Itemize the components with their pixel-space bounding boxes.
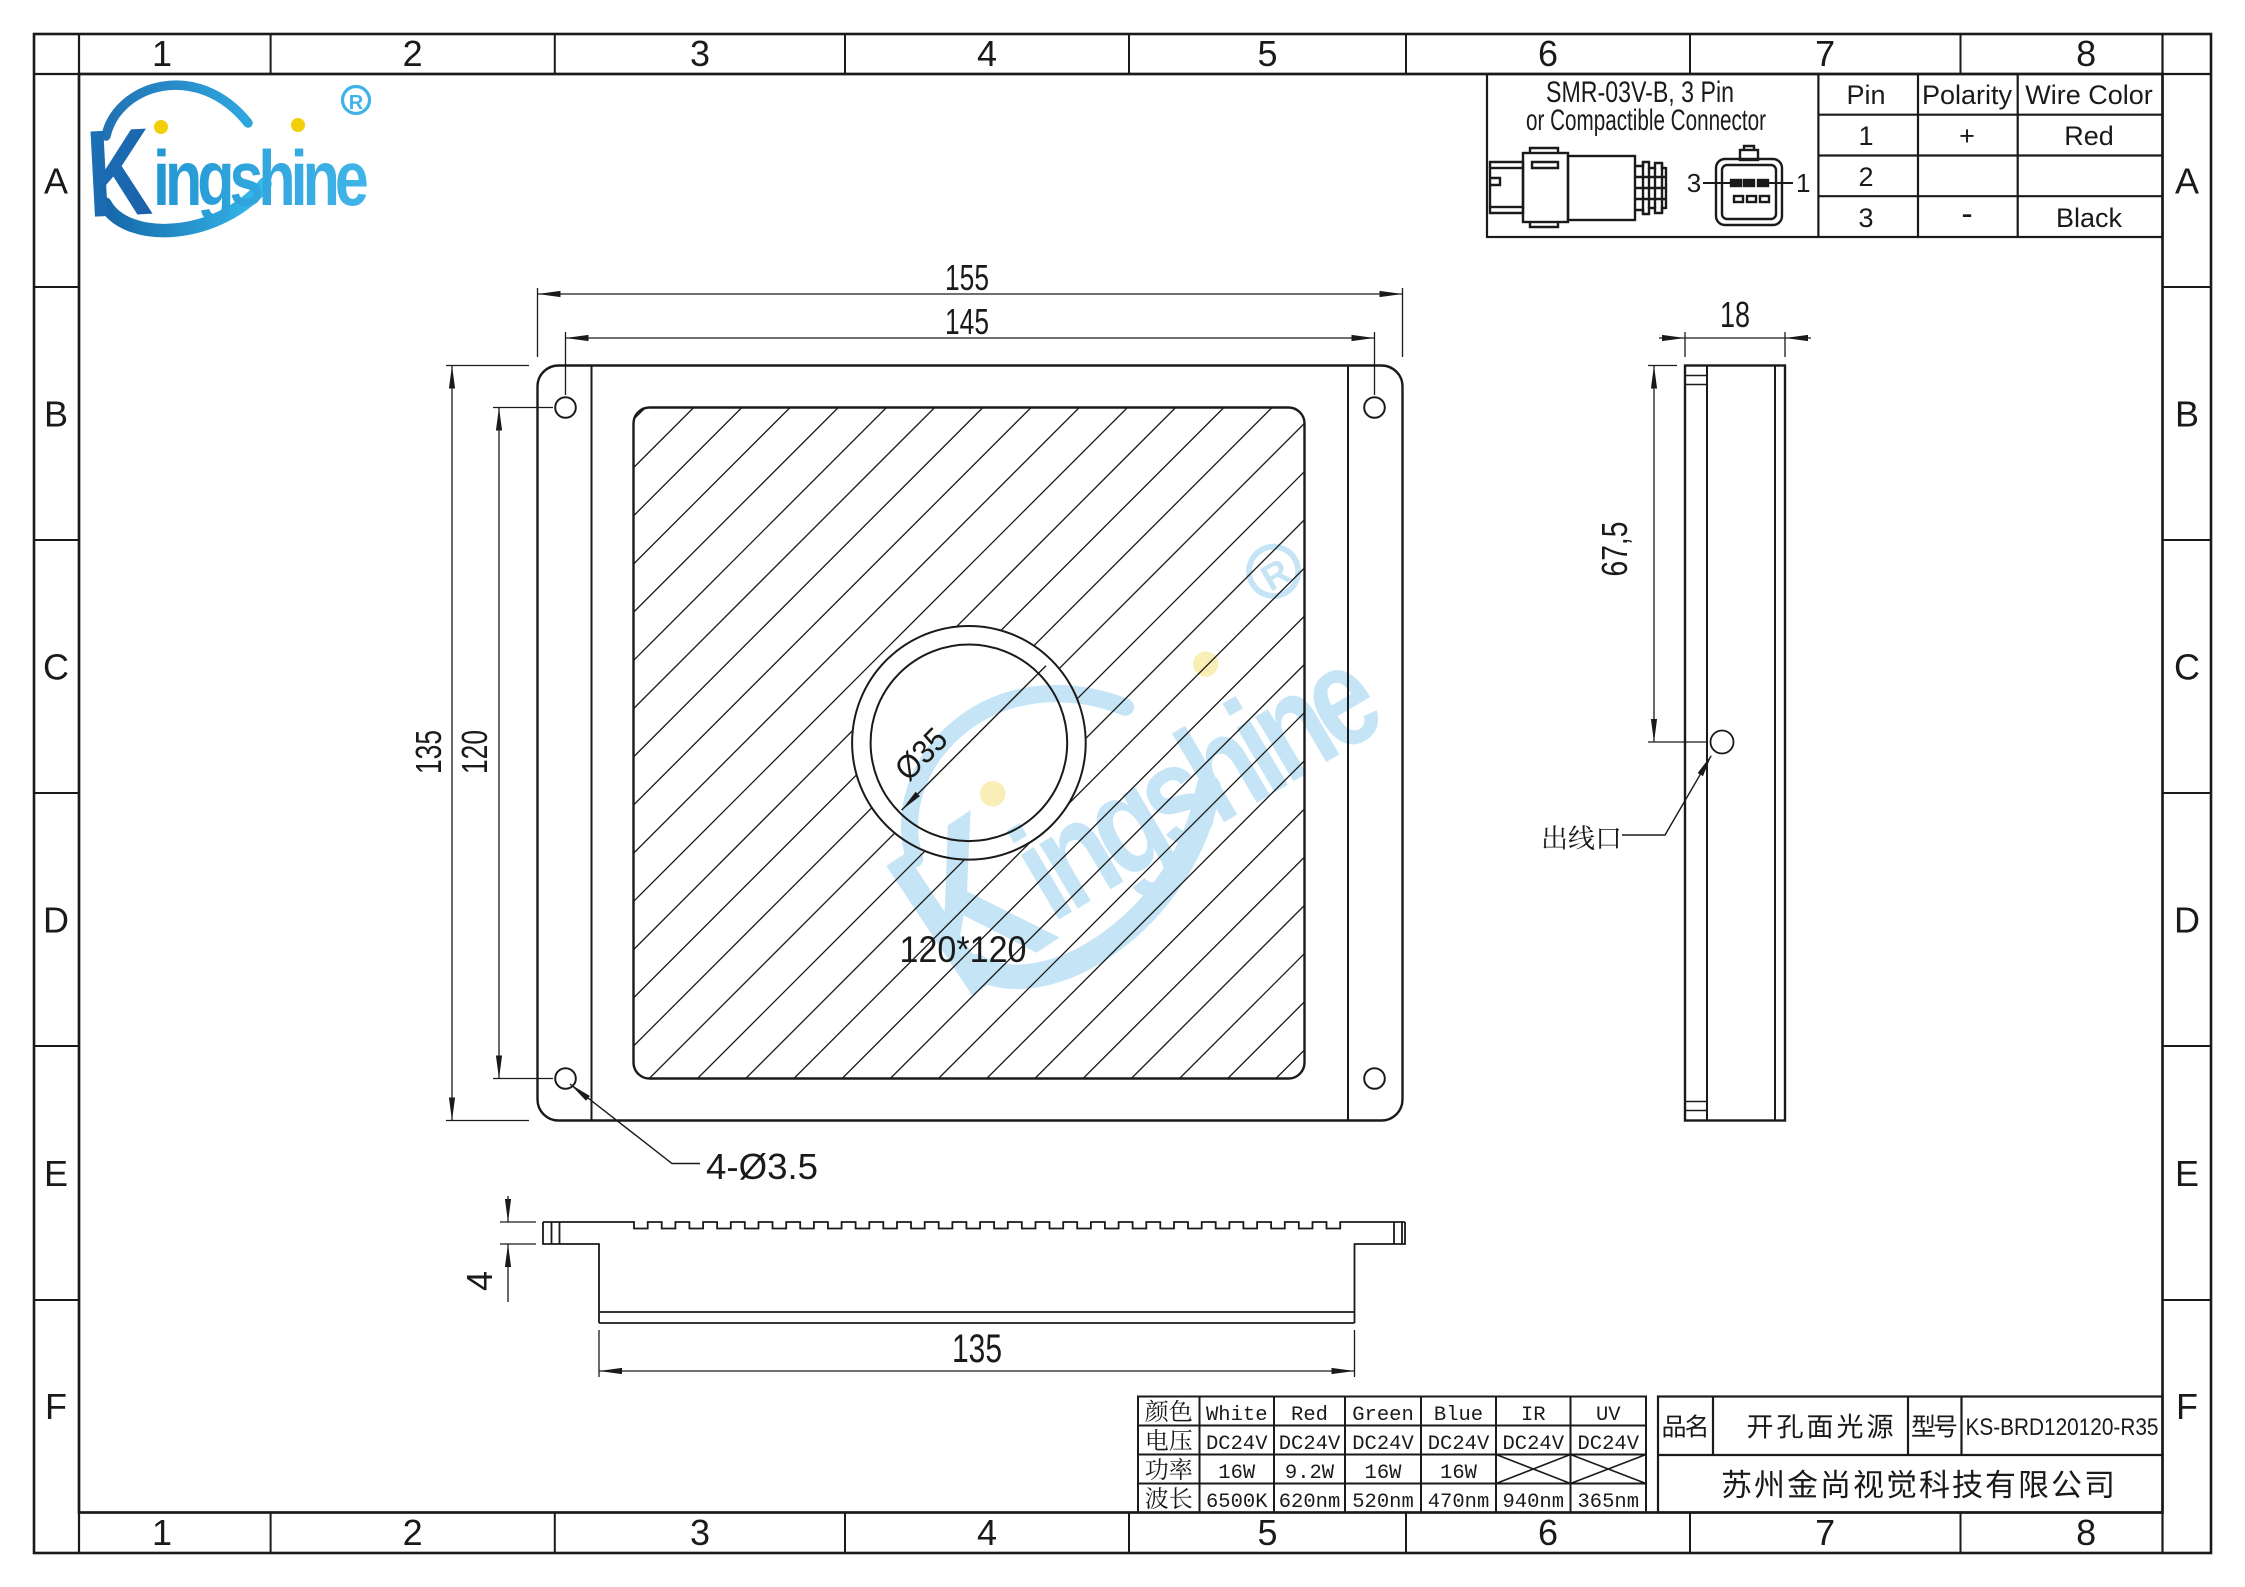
svg-text:8: 8 — [2076, 1512, 2096, 1553]
svg-text:16W: 16W — [1218, 1462, 1256, 1485]
svg-text:D: D — [43, 900, 69, 941]
svg-text:DC24V: DC24V — [1577, 1433, 1639, 1456]
svg-text:DC24V: DC24V — [1502, 1433, 1564, 1456]
svg-text:DC24V: DC24V — [1428, 1433, 1490, 1456]
svg-text:Pin: Pin — [1846, 80, 1885, 110]
svg-text:9.2W: 9.2W — [1285, 1462, 1335, 1485]
svg-text:135: 135 — [952, 1327, 1002, 1371]
svg-text:3: 3 — [690, 1512, 710, 1553]
svg-text:DC24V: DC24V — [1279, 1433, 1341, 1456]
svg-text:Polarity: Polarity — [1922, 80, 2013, 110]
svg-text:Red: Red — [1291, 1404, 1328, 1427]
svg-text:F: F — [45, 1386, 67, 1427]
svg-text:4: 4 — [977, 33, 997, 74]
svg-text:F: F — [2176, 1386, 2198, 1427]
svg-text:3: 3 — [1687, 168, 1701, 198]
svg-text:7: 7 — [1815, 33, 1835, 74]
svg-text:5: 5 — [1257, 33, 1277, 74]
svg-text:7: 7 — [1815, 1512, 1835, 1553]
svg-text:B: B — [2175, 394, 2199, 435]
svg-text:145: 145 — [945, 301, 989, 342]
svg-text:6: 6 — [1538, 1512, 1558, 1553]
svg-text:DC24V: DC24V — [1206, 1433, 1268, 1456]
svg-text:DC24V: DC24V — [1352, 1433, 1414, 1456]
svg-text:1: 1 — [152, 1512, 172, 1553]
svg-text:Red: Red — [2064, 121, 2114, 151]
svg-text:620nm: 620nm — [1279, 1491, 1341, 1514]
svg-text:E: E — [2175, 1153, 2199, 1194]
svg-text:155: 155 — [945, 257, 989, 298]
svg-text:120: 120 — [454, 730, 495, 774]
svg-text:3: 3 — [1858, 203, 1873, 233]
svg-text:4: 4 — [977, 1512, 997, 1553]
svg-text:Blue: Blue — [1434, 1404, 1483, 1427]
svg-text:2: 2 — [1858, 162, 1873, 192]
svg-text:365nm: 365nm — [1577, 1491, 1639, 1514]
svg-text:ingshine: ingshine — [153, 135, 367, 222]
svg-text:940nm: 940nm — [1502, 1491, 1564, 1514]
svg-text:5: 5 — [1257, 1512, 1277, 1553]
svg-text:2: 2 — [403, 33, 423, 74]
svg-text:16W: 16W — [1440, 1462, 1478, 1485]
svg-text:1: 1 — [152, 33, 172, 74]
svg-text:1: 1 — [1858, 121, 1873, 151]
svg-text:C: C — [43, 647, 69, 688]
svg-text:8: 8 — [2076, 33, 2096, 74]
svg-text:470nm: 470nm — [1428, 1491, 1490, 1514]
svg-text:67,5: 67,5 — [1594, 522, 1635, 577]
svg-text:135: 135 — [408, 730, 449, 774]
svg-text:K: K — [83, 101, 155, 243]
svg-text:B: B — [44, 394, 68, 435]
svg-text:18: 18 — [1720, 294, 1750, 335]
svg-text:KS-BRD120120-R35: KS-BRD120120-R35 — [1966, 1414, 2159, 1441]
svg-text:A: A — [2175, 161, 2199, 202]
svg-text:1: 1 — [1796, 168, 1810, 198]
svg-text:3: 3 — [690, 33, 710, 74]
svg-text:2: 2 — [403, 1512, 423, 1553]
svg-text:-: - — [1961, 195, 1972, 233]
svg-text:IR: IR — [1521, 1404, 1546, 1427]
svg-text:4: 4 — [459, 1271, 500, 1291]
svg-text:120*120: 120*120 — [900, 929, 1027, 970]
svg-text:4-Ø3.5: 4-Ø3.5 — [706, 1146, 818, 1187]
svg-text:A: A — [44, 161, 68, 202]
svg-text:D: D — [2174, 900, 2200, 941]
svg-text:E: E — [44, 1153, 68, 1194]
svg-text:6: 6 — [1538, 33, 1558, 74]
svg-text:Wire Color: Wire Color — [2025, 80, 2153, 110]
svg-text:UV: UV — [1596, 1404, 1621, 1427]
svg-text:Black: Black — [2056, 203, 2123, 233]
svg-text:Green: Green — [1352, 1404, 1414, 1427]
svg-text:+: + — [1959, 121, 1975, 151]
svg-text:or Compactible Connector: or Compactible Connector — [1526, 104, 1766, 137]
svg-text:6500K: 6500K — [1206, 1491, 1268, 1514]
svg-text:White: White — [1206, 1404, 1268, 1427]
svg-text:520nm: 520nm — [1352, 1491, 1414, 1514]
svg-text:16W: 16W — [1365, 1462, 1403, 1485]
svg-text:R: R — [349, 92, 364, 114]
svg-text:C: C — [2174, 647, 2200, 688]
